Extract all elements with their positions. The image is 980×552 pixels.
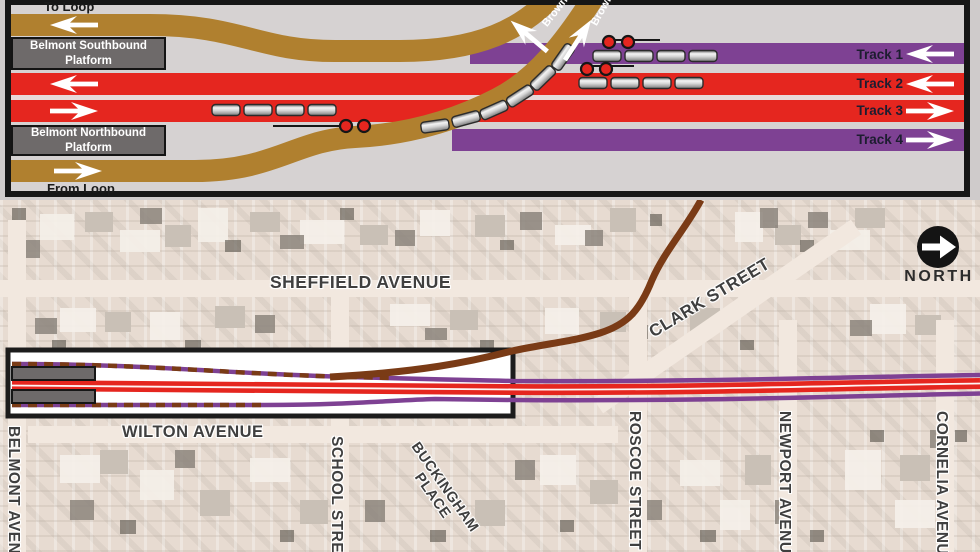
belmont-avenue-label: BELMONT AVENUE (4, 426, 22, 552)
track4-label: Track 4 (845, 132, 903, 147)
wilton-street (28, 426, 618, 443)
inset-northbound-platform (12, 390, 95, 403)
school-street-label: SCHOOL STREET (327, 436, 345, 552)
northbound-platform: Belmont Northbound Platform (11, 125, 166, 156)
belmont-clark-junction-diagram: To Loop From Loop Belmont Southbound Pla… (0, 0, 980, 552)
northbound-platform-line1: Belmont Northbound (31, 126, 146, 140)
north-indicator (917, 226, 959, 268)
newport-avenue-label: NEWPORT AVENUE (775, 411, 793, 552)
track1-label: Track 1 (845, 47, 903, 62)
from-loop-label: From Loop (47, 181, 115, 196)
southbound-platform-line2: Platform (65, 54, 112, 68)
track2-label: Track 2 (845, 76, 903, 91)
inset-southbound-platform (12, 367, 95, 380)
southbound-platform: Belmont Southbound Platform (11, 37, 166, 70)
north-label: NORTH (898, 268, 980, 286)
map-graphic (0, 200, 980, 552)
sheffield-avenue-label: SHEFFIELD AVENUE (270, 272, 451, 293)
cornelia-avenue-label: CORNELIA AVENUE (932, 411, 950, 552)
schematic-graphic (0, 0, 980, 198)
sheffield-street (0, 280, 980, 297)
track3-label: Track 3 (845, 103, 903, 118)
aerial-map-panel: SHEFFIELD AVENUE CLARK STREET WILTON AVE… (0, 200, 980, 552)
wilton-avenue-label: WILTON AVENUE (122, 423, 264, 442)
to-loop-label: To Loop (44, 0, 94, 14)
northbound-platform-line2: Platform (65, 141, 112, 155)
track-schematic-panel: To Loop From Loop Belmont Southbound Pla… (0, 0, 980, 198)
roscoe-street-label: ROSCOE STREET (625, 411, 643, 550)
southbound-platform-line1: Belmont Southbound (30, 39, 147, 53)
